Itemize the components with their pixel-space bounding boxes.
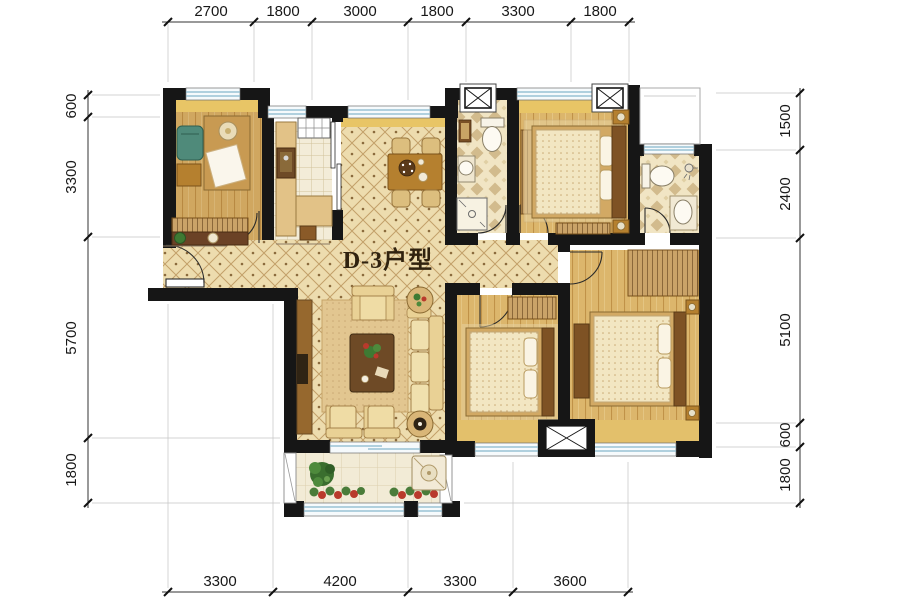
shaft-icon xyxy=(538,419,595,457)
dim-label: 3600 xyxy=(553,573,586,590)
dim-label: 3300 xyxy=(501,3,534,20)
washing-machine-icon xyxy=(412,456,446,490)
dim-label: 3300 xyxy=(203,573,236,590)
window-dining xyxy=(348,106,430,118)
pillow-icon xyxy=(524,338,537,366)
dim-label: 3300 xyxy=(63,160,80,193)
dim-label: 1500 xyxy=(777,104,794,137)
lounge-chair-icon xyxy=(177,126,203,160)
window-kitchen xyxy=(268,106,306,118)
open-bay xyxy=(640,88,700,144)
cup-icon xyxy=(362,376,369,383)
tv-icon xyxy=(297,354,308,384)
kitchen-counter-icon xyxy=(276,122,296,236)
chair-icon xyxy=(300,226,316,240)
dim-label: 5100 xyxy=(777,313,794,346)
window-study xyxy=(186,88,240,100)
dim-label: 4200 xyxy=(323,573,356,590)
window-balcony-2 xyxy=(418,503,442,516)
dim-label: 5700 xyxy=(63,321,80,354)
dimension-right: 1500 2400 5100 600 1800 xyxy=(777,88,804,508)
headboard-icon xyxy=(612,126,626,218)
armchair-icon xyxy=(352,286,394,296)
dim-label: 1800 xyxy=(777,458,794,491)
dim-label: 2700 xyxy=(194,3,227,20)
toilet-icon xyxy=(481,118,504,127)
pillow-icon xyxy=(600,170,613,200)
headboard-icon xyxy=(542,328,554,416)
shaft-icon xyxy=(460,84,496,112)
chair-icon xyxy=(392,138,410,155)
platter-icon xyxy=(399,160,415,176)
chair-icon xyxy=(422,190,440,207)
shower-head-icon xyxy=(685,164,693,172)
floor-plan-page: D-3户型 2700 1800 3000 1800 3300 1800 xyxy=(0,0,900,600)
side-table-icon xyxy=(177,164,201,186)
dining-table-icon xyxy=(388,154,442,190)
kitchen-table-icon xyxy=(296,196,332,226)
balcony-sliding-door xyxy=(330,442,420,453)
pillow-icon xyxy=(524,370,537,398)
floor-plan-svg: D-3户型 2700 1800 3000 1800 3300 1800 xyxy=(0,0,900,600)
window-bathroom2 xyxy=(644,144,694,154)
dim-label: 1800 xyxy=(266,3,299,20)
window-bedroom-top xyxy=(517,88,593,100)
dimension-bottom: 3300 4200 3300 3600 xyxy=(162,573,633,596)
dim-label: 1800 xyxy=(63,453,80,486)
dimension-top: 2700 1800 3000 1800 3300 1800 xyxy=(162,3,635,26)
dimension-left: 600 3300 5700 1800 xyxy=(63,90,92,508)
dim-label: 3000 xyxy=(343,3,376,20)
room-bedroom-top xyxy=(521,110,629,234)
coffee-table-icon xyxy=(350,334,394,392)
dim-label: 2400 xyxy=(777,177,794,210)
chair-icon xyxy=(392,190,410,207)
side-table-icon xyxy=(407,287,433,313)
dim-label: 1800 xyxy=(583,3,616,20)
sofa-icon xyxy=(429,316,443,410)
window-balcony-1 xyxy=(304,503,404,516)
shaft-icon xyxy=(592,84,628,112)
pillow-icon xyxy=(658,324,671,354)
lamp-icon xyxy=(208,233,218,243)
window-bedroom3 xyxy=(475,443,538,456)
plant-icon xyxy=(175,233,186,244)
room-study xyxy=(172,116,250,245)
dim-label: 3300 xyxy=(443,573,476,590)
pillow-icon xyxy=(658,358,671,388)
dresser-icon xyxy=(574,324,589,398)
unit-type-label: D-3户型 xyxy=(343,246,433,274)
window-bedroom4 xyxy=(594,443,676,456)
dim-label: 1800 xyxy=(420,3,453,20)
chair-icon xyxy=(422,138,440,155)
dim-label: 600 xyxy=(63,93,80,118)
plate-icon xyxy=(419,173,428,182)
pillow-icon xyxy=(600,136,613,166)
dim-label: 600 xyxy=(777,422,794,447)
headboard-icon xyxy=(674,312,686,406)
toilet-icon xyxy=(642,164,650,188)
